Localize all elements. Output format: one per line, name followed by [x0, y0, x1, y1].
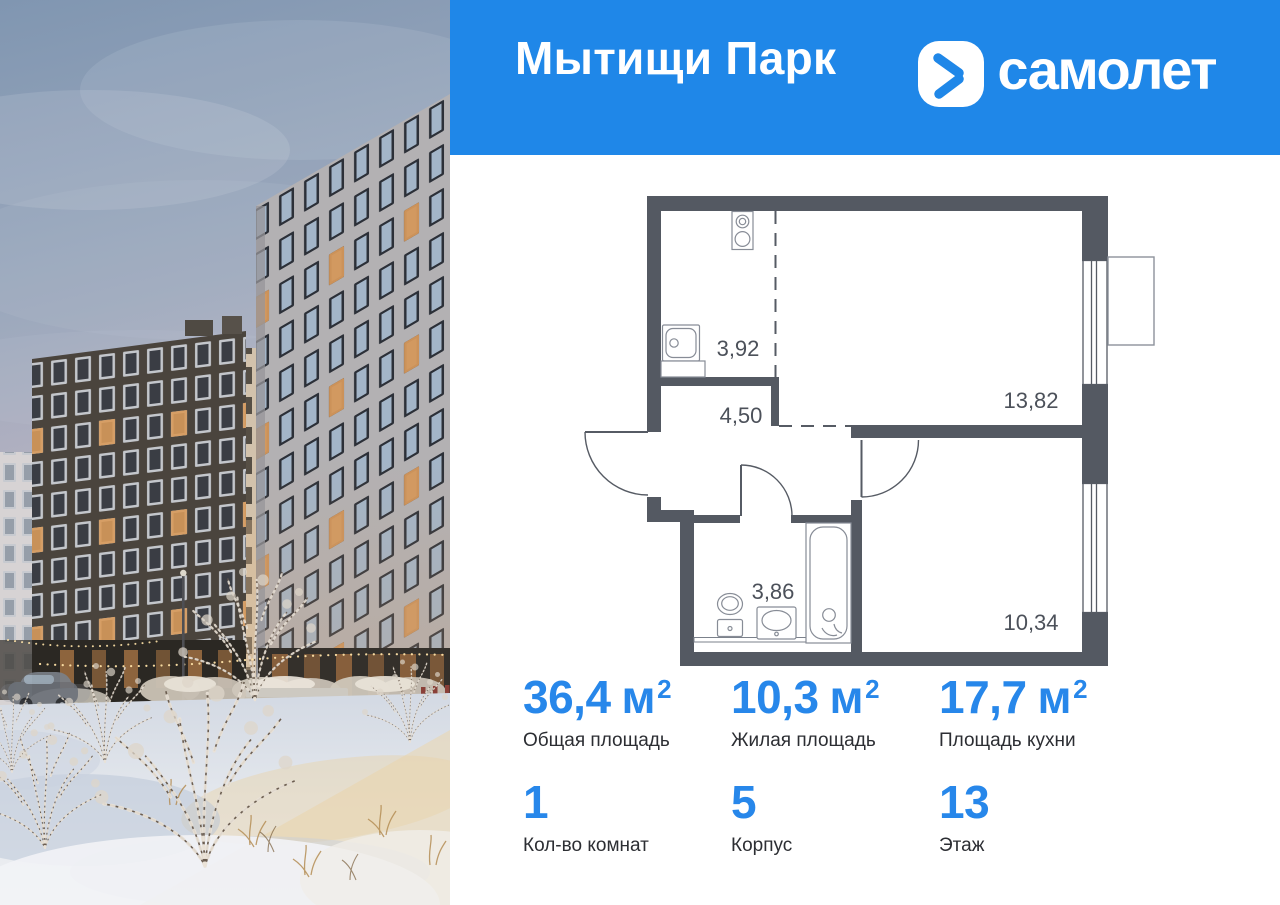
floor-plan-walls	[647, 196, 1108, 666]
apartment-details: 3,92 4,50 13,82 3,86 10,34 36,4м2 Общая …	[450, 155, 1280, 905]
stove-symbol	[732, 212, 753, 250]
stat-total-area-value: 36,4м2	[523, 674, 671, 720]
bathroom-door	[741, 465, 792, 516]
samolet-logo: самолет	[918, 41, 1216, 107]
kitchen-living-dashed-boundary	[776, 211, 852, 426]
stat-living-area-value: 10,3м2	[731, 674, 879, 720]
room-area-living-room: 13,82	[1003, 388, 1058, 413]
window-living-room	[1082, 260, 1108, 385]
samolet-logo-icon	[918, 41, 984, 107]
washbasin-symbol	[757, 607, 796, 639]
stat-rooms-count-label: Кол-во комнат	[523, 835, 649, 857]
apartment-listing-card: Мытищи Парк самолет	[0, 0, 1280, 905]
stat-rooms-count-value: 1	[523, 779, 649, 825]
room-area-bedroom: 10,34	[1003, 610, 1058, 635]
window-bedroom	[1082, 483, 1108, 613]
balcony-outline	[1108, 257, 1154, 345]
stat-building-number: 5 Корпус	[731, 779, 792, 857]
bedroom-door	[862, 440, 919, 497]
project-title: Мытищи Парк	[515, 33, 836, 84]
stat-floor-number-label: Этаж	[939, 835, 989, 857]
stat-kitchen-area-label: Площадь кухни	[939, 730, 1087, 752]
stat-living-area-label: Жилая площадь	[731, 730, 879, 752]
header: Мытищи Парк самолет	[450, 0, 1280, 155]
kitchen-sink-symbol	[661, 325, 705, 377]
room-area-hallway: 4,50	[720, 403, 763, 428]
room-area-kitchen: 3,92	[717, 336, 760, 361]
entrance-door	[585, 432, 648, 495]
stat-building-number-label: Корпус	[731, 835, 792, 857]
stat-kitchen-area: 17,7м2 Площадь кухни	[939, 674, 1087, 752]
stat-floor-number-value: 13	[939, 779, 989, 825]
stat-living-area: 10,3м2 Жилая площадь	[731, 674, 879, 752]
stat-rooms-count: 1 Кол-во комнат	[523, 779, 649, 857]
toilet-symbol	[718, 594, 743, 637]
stat-total-area-label: Общая площадь	[523, 730, 671, 752]
building-photo-illustration	[0, 0, 450, 905]
samolet-logo-text: самолет	[997, 42, 1216, 98]
building-photo	[0, 0, 450, 905]
stat-building-number-value: 5	[731, 779, 792, 825]
bathtub-symbol	[806, 523, 851, 643]
stat-floor-number: 13 Этаж	[939, 779, 989, 857]
stat-kitchen-area-value: 17,7м2	[939, 674, 1087, 720]
stat-total-area: 36,4м2 Общая площадь	[523, 674, 671, 752]
room-area-bathroom: 3,86	[752, 579, 795, 604]
